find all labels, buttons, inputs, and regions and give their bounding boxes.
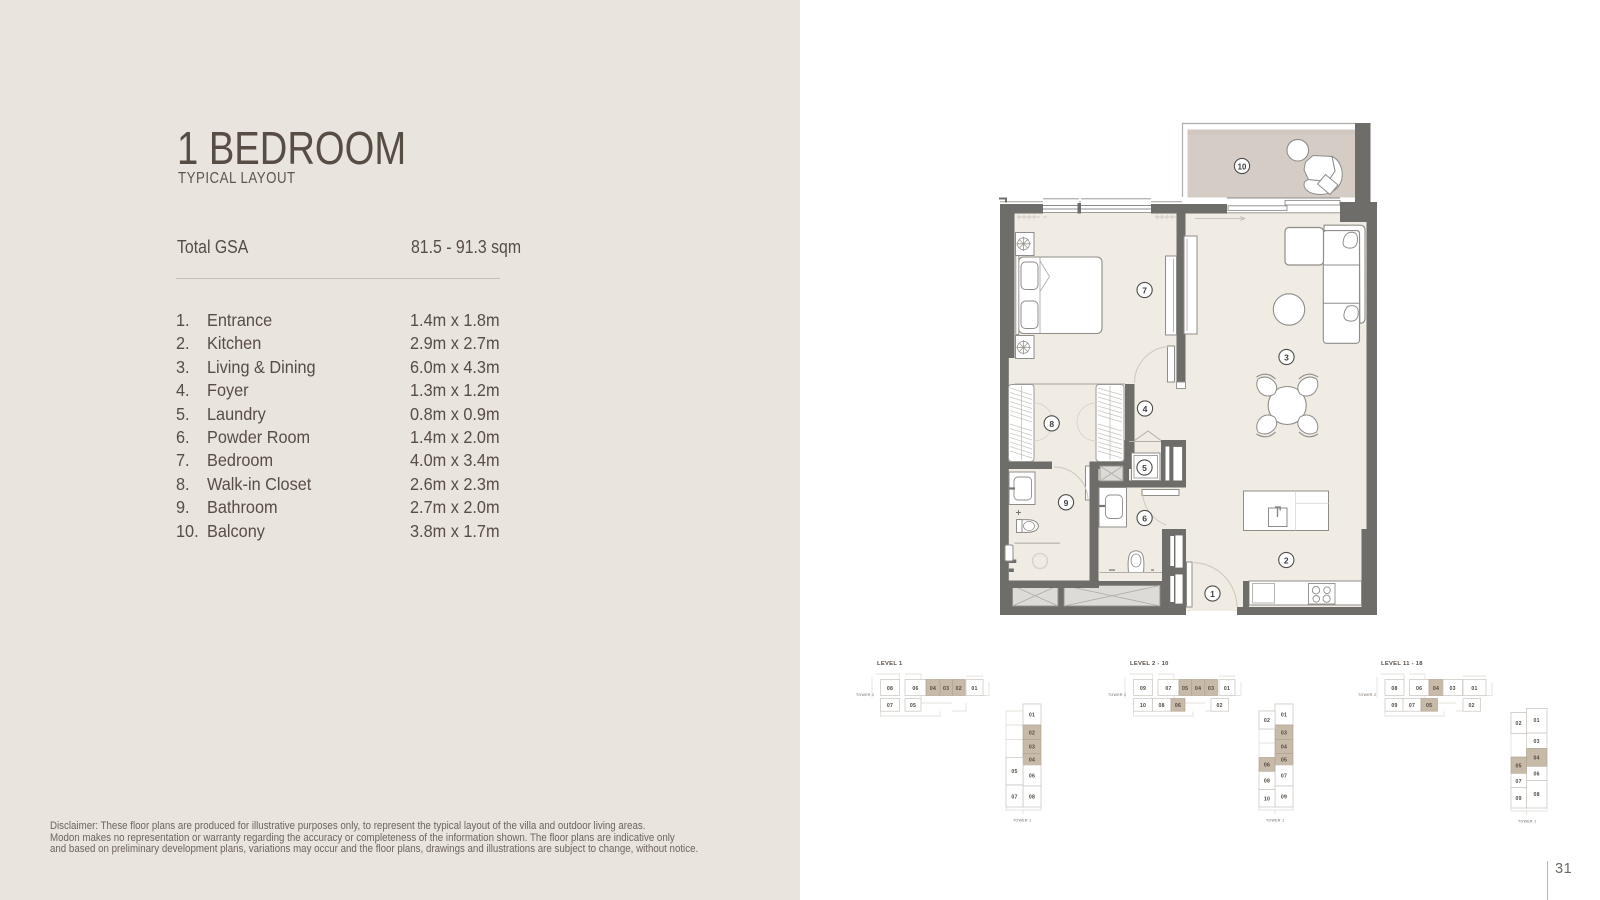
svg-text:03: 03 bbox=[1450, 686, 1456, 692]
svg-text:09: 09 bbox=[1516, 796, 1522, 802]
svg-text:04: 04 bbox=[1281, 745, 1287, 751]
svg-text:06: 06 bbox=[912, 686, 918, 692]
svg-text:LEVEL 1: LEVEL 1 bbox=[877, 661, 903, 667]
svg-text:07: 07 bbox=[887, 703, 893, 709]
svg-text:02: 02 bbox=[1217, 703, 1223, 709]
svg-text:03: 03 bbox=[1534, 739, 1540, 745]
svg-text:04: 04 bbox=[1433, 686, 1439, 692]
svg-text:8: 8 bbox=[1049, 419, 1054, 429]
svg-text:TOWER 1: TOWER 1 bbox=[1518, 820, 1536, 824]
svg-text:01: 01 bbox=[1471, 686, 1477, 692]
svg-text:03: 03 bbox=[1208, 686, 1214, 692]
svg-text:01: 01 bbox=[1029, 713, 1035, 719]
svg-text:03: 03 bbox=[1281, 731, 1287, 737]
svg-text:01: 01 bbox=[1224, 686, 1230, 692]
svg-text:4: 4 bbox=[1143, 404, 1148, 414]
svg-text:07: 07 bbox=[1011, 795, 1017, 801]
svg-text:TOWER 2: TOWER 2 bbox=[1108, 693, 1126, 697]
svg-text:TOWER 2: TOWER 2 bbox=[1358, 693, 1376, 697]
svg-text:04: 04 bbox=[1195, 686, 1201, 692]
svg-text:04: 04 bbox=[1534, 756, 1540, 762]
svg-text:06: 06 bbox=[1175, 703, 1181, 709]
svg-text:TOWER 1: TOWER 1 bbox=[1013, 819, 1031, 823]
svg-text:08: 08 bbox=[1391, 686, 1397, 692]
svg-text:10: 10 bbox=[1264, 797, 1270, 803]
svg-text:08: 08 bbox=[887, 686, 893, 692]
svg-text:06: 06 bbox=[1029, 774, 1035, 780]
svg-text:5: 5 bbox=[1142, 463, 1147, 473]
svg-text:01: 01 bbox=[1534, 718, 1540, 724]
svg-text:02: 02 bbox=[1029, 731, 1035, 737]
svg-text:3: 3 bbox=[1284, 353, 1289, 363]
svg-text:05: 05 bbox=[1011, 769, 1017, 775]
svg-text:07: 07 bbox=[1409, 703, 1415, 709]
svg-text:09: 09 bbox=[1391, 703, 1397, 709]
svg-text:08: 08 bbox=[1159, 703, 1165, 709]
svg-text:08: 08 bbox=[1534, 792, 1540, 798]
svg-text:02: 02 bbox=[1469, 703, 1475, 709]
svg-text:9: 9 bbox=[1064, 498, 1069, 508]
svg-text:2: 2 bbox=[1284, 556, 1289, 566]
svg-text:7: 7 bbox=[1142, 286, 1147, 296]
svg-text:02: 02 bbox=[956, 686, 962, 692]
svg-text:09: 09 bbox=[1281, 795, 1287, 801]
svg-text:05: 05 bbox=[1516, 764, 1522, 770]
svg-text:05: 05 bbox=[1182, 686, 1188, 692]
svg-text:04: 04 bbox=[1029, 758, 1035, 764]
svg-text:TOWER 2: TOWER 2 bbox=[856, 693, 874, 697]
svg-text:LEVEL 2 - 10: LEVEL 2 - 10 bbox=[1130, 661, 1169, 667]
svg-text:07: 07 bbox=[1516, 779, 1522, 785]
svg-text:06: 06 bbox=[1264, 763, 1270, 769]
svg-text:05: 05 bbox=[1281, 758, 1287, 764]
svg-text:10: 10 bbox=[1140, 703, 1146, 709]
svg-text:03: 03 bbox=[943, 686, 949, 692]
svg-text:LEVEL 11 - 18: LEVEL 11 - 18 bbox=[1381, 661, 1423, 667]
svg-text:05: 05 bbox=[1426, 703, 1432, 709]
svg-text:04: 04 bbox=[930, 686, 936, 692]
svg-text:06: 06 bbox=[1534, 772, 1540, 778]
svg-text:01: 01 bbox=[1281, 713, 1287, 719]
svg-text:02: 02 bbox=[1264, 718, 1270, 724]
svg-text:01: 01 bbox=[971, 686, 977, 692]
svg-text:03: 03 bbox=[1029, 745, 1035, 751]
svg-text:02: 02 bbox=[1516, 721, 1522, 727]
svg-text:08: 08 bbox=[1029, 795, 1035, 801]
svg-text:TOWER 1: TOWER 1 bbox=[1266, 819, 1284, 823]
svg-text:6: 6 bbox=[1142, 514, 1147, 524]
svg-text:07: 07 bbox=[1165, 686, 1171, 692]
svg-text:05: 05 bbox=[910, 703, 916, 709]
svg-text:10: 10 bbox=[1238, 163, 1247, 172]
svg-text:09: 09 bbox=[1140, 686, 1146, 692]
svg-text:07: 07 bbox=[1281, 774, 1287, 780]
svg-text:06: 06 bbox=[1416, 686, 1422, 692]
svg-text:1: 1 bbox=[1210, 589, 1215, 599]
svg-text:08: 08 bbox=[1264, 779, 1270, 785]
